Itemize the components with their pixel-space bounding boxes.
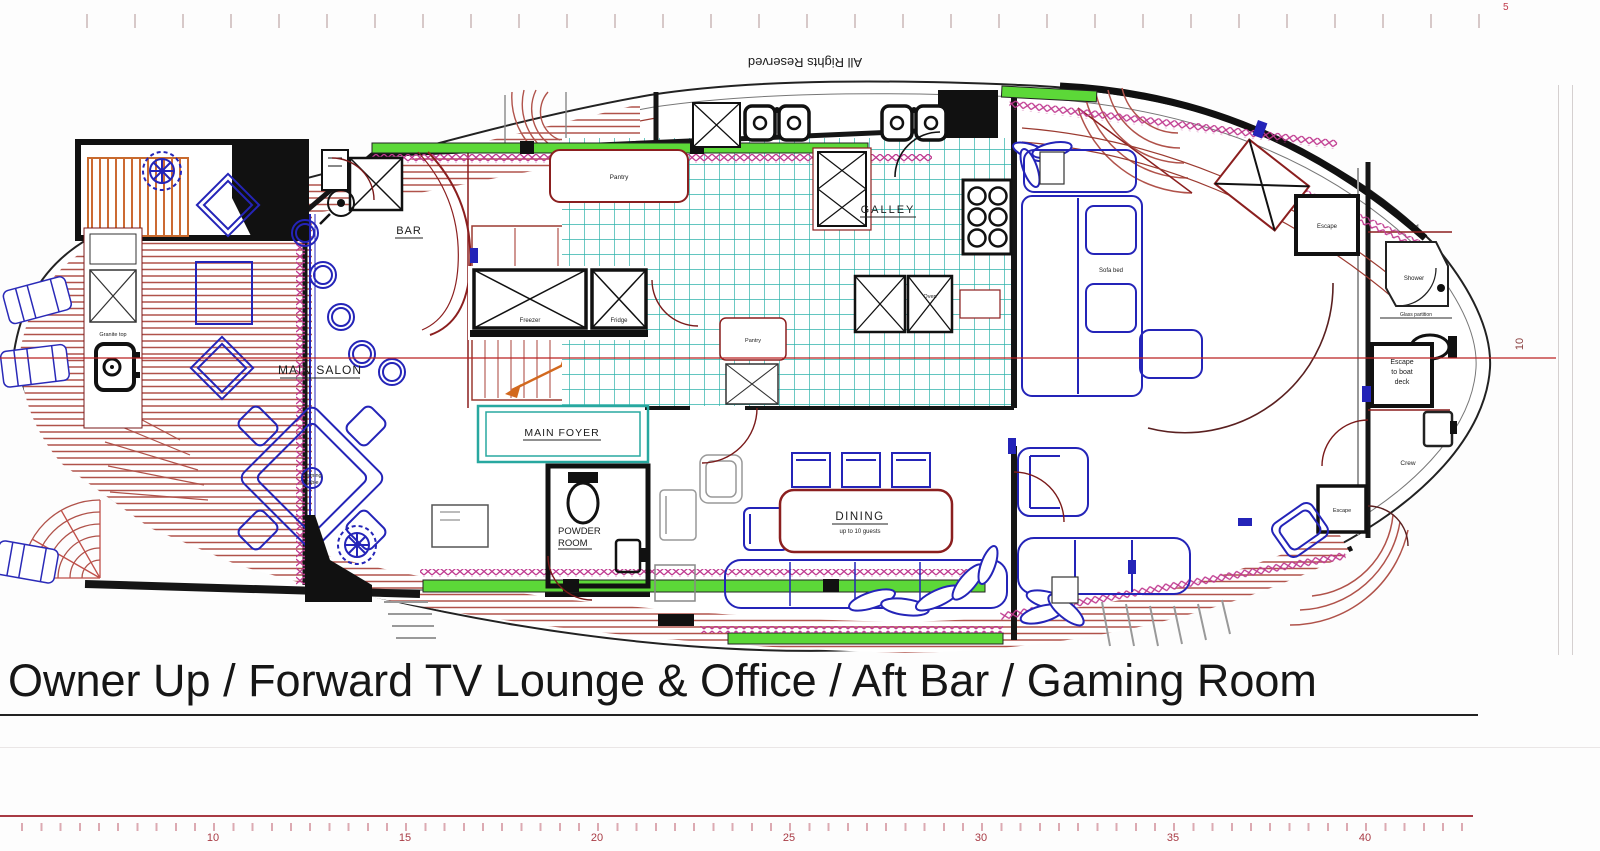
oven-label: Oven [923, 294, 936, 300]
main-salon-label: MAIN SALON [278, 363, 362, 377]
fridge-label: Fridge [610, 318, 628, 324]
ruler-number: 25 [783, 832, 795, 844]
page-edge-line [1558, 85, 1559, 655]
pantry-upper-label: Pantry [610, 174, 630, 181]
title-underline [0, 714, 1478, 716]
powder-label-2: ROOM [558, 538, 588, 549]
sheet-title: Owner Up / Forward TV Lounge & Office / … [8, 655, 1568, 707]
ruler-number: 20 [591, 832, 603, 844]
ruler-number: 35 [1167, 832, 1179, 844]
gaming-table-label-2: Table [305, 480, 318, 486]
page-edge-line [1572, 85, 1573, 655]
bed-label: bed [1409, 224, 1418, 230]
ruler-number: 15 [399, 832, 411, 844]
gaming-table-label-1: Gaming [302, 473, 321, 479]
floor-plan-page: 5 10 [0, 0, 1600, 851]
deck-plan-drawing: Granite top [0, 0, 1600, 655]
escape-hatch-label-1: Escape [1390, 359, 1413, 366]
glass-partition-label: Glass partition [1400, 312, 1432, 318]
escape-hatch-label-2: to boat [1391, 369, 1412, 376]
bar-label: BAR [396, 225, 422, 237]
shower-label: Shower [1404, 276, 1424, 282]
sofa-bed-label: Sofa bed [1099, 268, 1123, 274]
ruler-number: 10 [207, 832, 219, 844]
port-console: Granite top [84, 228, 142, 428]
escape-mid-label: Escape [1333, 508, 1351, 514]
side-ruler-number: 10 [1514, 338, 1526, 350]
stove [963, 180, 1011, 254]
dining-capacity-label: up to 10 guests [839, 529, 880, 535]
dining-label: DINING [835, 511, 884, 523]
watermark: All Rights Reserved [748, 55, 862, 70]
pantry-mid-label: Pantry [745, 338, 761, 344]
top-ruler-ticks [40, 14, 1520, 28]
granite-top-label: Granite top [99, 332, 126, 338]
crew-label: Crew [1400, 460, 1415, 467]
powder-label-1: POWDER [558, 526, 601, 537]
freezer-label: Freezer [520, 318, 541, 324]
separator-line [0, 747, 1600, 748]
bottom-ruler-line [0, 815, 1473, 817]
bottom-ruler-ticks [4, 823, 1472, 831]
top-ruler-number: 5 [1503, 2, 1509, 13]
ruler-number: 40 [1359, 832, 1371, 844]
freezer-fridge: Freezer Fridge [468, 266, 648, 340]
ruler-number: 30 [975, 832, 987, 844]
forward-room [78, 142, 306, 238]
escape-hatch-label-3: deck [1395, 379, 1410, 386]
main-foyer-label: MAIN FOYER [524, 427, 599, 439]
galley-label: GALLEY [861, 204, 916, 216]
escape-aft-label: Escape [1317, 224, 1338, 230]
